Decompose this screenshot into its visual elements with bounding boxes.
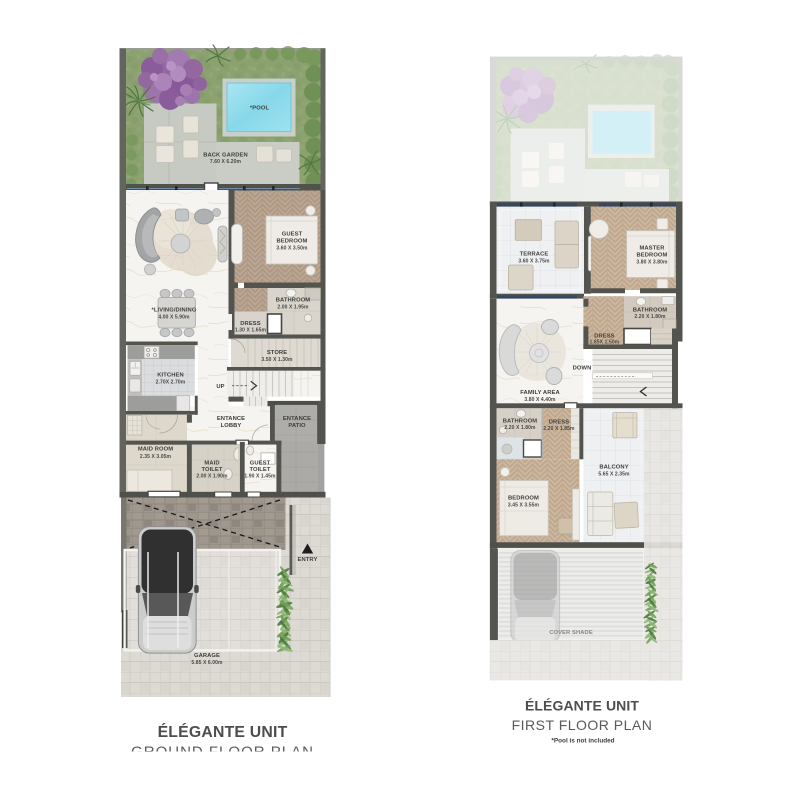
svg-text:3.45 X 3.55m: 3.45 X 3.55m bbox=[508, 503, 540, 509]
svg-text:BATHROOM: BATHROOM bbox=[276, 298, 311, 304]
svg-text:2.70X 2.70m: 2.70X 2.70m bbox=[156, 380, 186, 386]
svg-text:3.50 X 1.30m: 3.50 X 1.30m bbox=[261, 357, 293, 363]
svg-text:TOILET: TOILET bbox=[201, 467, 222, 473]
svg-text:BACK GARDEN: BACK GARDEN bbox=[203, 153, 248, 159]
svg-text:BEDROOM: BEDROOM bbox=[508, 496, 539, 502]
svg-text:BATHROOM: BATHROOM bbox=[503, 419, 538, 425]
svg-text:BEDROOM: BEDROOM bbox=[277, 239, 308, 245]
svg-text:DRESS: DRESS bbox=[240, 321, 261, 327]
svg-text:3.60 X 3.75m: 3.60 X 3.75m bbox=[518, 259, 550, 265]
svg-text:DRESS: DRESS bbox=[549, 420, 570, 426]
svg-text:GARAGE: GARAGE bbox=[194, 653, 220, 659]
svg-text:GUEST: GUEST bbox=[250, 461, 271, 467]
svg-text:BATHROOM: BATHROOM bbox=[633, 308, 668, 314]
svg-text:*Pool is not included: *Pool is not included bbox=[551, 738, 614, 745]
svg-text:3.80 X 4.40m: 3.80 X 4.40m bbox=[524, 397, 556, 403]
svg-text:ENTANCE: ENTANCE bbox=[283, 416, 311, 422]
svg-text:2.00 X 1.90m: 2.00 X 1.90m bbox=[196, 474, 228, 480]
svg-text:ENTRY: ENTRY bbox=[298, 557, 318, 563]
svg-text:3.60 X 3.50m: 3.60 X 3.50m bbox=[276, 246, 308, 252]
svg-text:FIRST FLOOR PLAN: FIRST FLOOR PLAN bbox=[512, 717, 653, 733]
svg-text:2.00 X 1.95m: 2.00 X 1.95m bbox=[277, 305, 309, 311]
svg-text:TERRACE: TERRACE bbox=[520, 252, 549, 258]
svg-text:3.80 X 3.80m: 3.80 X 3.80m bbox=[636, 260, 668, 266]
svg-text:BALCONY: BALCONY bbox=[599, 465, 628, 471]
svg-text:KITCHEN: KITCHEN bbox=[157, 373, 183, 379]
svg-text:2.35 X 3.05m: 2.35 X 3.05m bbox=[140, 454, 172, 460]
svg-text:MAID ROOM: MAID ROOM bbox=[138, 447, 173, 453]
svg-text:*LIVING/DINING: *LIVING/DINING bbox=[152, 308, 197, 314]
svg-text:ÉLÉGANTE UNIT: ÉLÉGANTE UNIT bbox=[525, 698, 639, 714]
svg-text:2.20 X 1.80m: 2.20 X 1.80m bbox=[634, 314, 666, 320]
svg-text:4.00 X 5.90m: 4.00 X 5.90m bbox=[158, 315, 190, 321]
svg-text:2.20 X 1.85m: 2.20 X 1.85m bbox=[543, 426, 575, 432]
svg-text:TOILET: TOILET bbox=[249, 467, 270, 473]
svg-text:DOWN: DOWN bbox=[573, 366, 592, 372]
svg-text:LOBBY: LOBBY bbox=[221, 423, 242, 429]
svg-text:1.90 X 1.45m: 1.90 X 1.45m bbox=[244, 474, 276, 480]
svg-text:5.65 X 2.35m: 5.65 X 2.35m bbox=[598, 472, 630, 478]
svg-text:ÉLÉGANTE UNIT: ÉLÉGANTE UNIT bbox=[158, 722, 288, 741]
svg-text:PATIO: PATIO bbox=[288, 423, 306, 429]
svg-text:2.20 X 1.80m: 2.20 X 1.80m bbox=[504, 425, 536, 431]
svg-text:GUEST: GUEST bbox=[282, 232, 303, 238]
svg-text:5.85 X 6.00m: 5.85 X 6.00m bbox=[191, 660, 223, 666]
svg-text:1.30 X 1.65m: 1.30 X 1.65m bbox=[235, 327, 267, 333]
svg-text:7.60 X 6.20m: 7.60 X 6.20m bbox=[210, 159, 242, 165]
svg-text:STORE: STORE bbox=[267, 350, 287, 356]
svg-text:BEDROOM: BEDROOM bbox=[637, 253, 668, 259]
svg-text:UP: UP bbox=[216, 384, 224, 390]
svg-text:FAMILY AREA: FAMILY AREA bbox=[520, 390, 560, 396]
svg-text:MASTER: MASTER bbox=[639, 246, 665, 252]
svg-text:*POOL: *POOL bbox=[250, 106, 270, 112]
svg-text:MAID: MAID bbox=[204, 461, 219, 467]
svg-text:ENTANCE: ENTANCE bbox=[217, 416, 245, 422]
